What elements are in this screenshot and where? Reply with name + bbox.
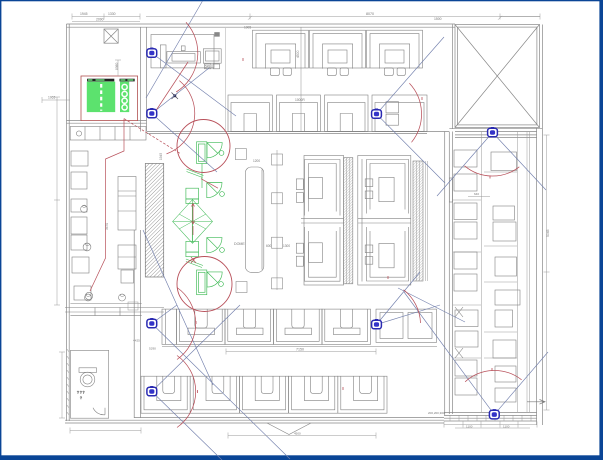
svg-text:1200: 1200 [253, 159, 260, 163]
svg-text:1100: 1100 [466, 425, 473, 429]
svg-text:DOME: DOME [234, 242, 245, 246]
svg-text:1300: 1300 [283, 244, 290, 248]
svg-text:8070: 8070 [366, 12, 374, 16]
svg-text:5045: 5045 [546, 229, 550, 237]
svg-text:? ? ?: ? ? ? [77, 391, 85, 395]
svg-text:1500: 1500 [434, 17, 442, 21]
svg-text:4500: 4500 [296, 50, 300, 58]
svg-text:4500: 4500 [294, 431, 301, 435]
svg-text:1945: 1945 [159, 153, 163, 160]
svg-text:1065: 1065 [48, 96, 56, 100]
svg-text:1000R: 1000R [295, 98, 305, 102]
svg-text:4425: 4425 [133, 339, 140, 343]
svg-text:8060: 8060 [115, 62, 119, 70]
svg-text:2090: 2090 [96, 17, 104, 21]
svg-text:200,200,300: 200,200,300 [428, 411, 445, 415]
svg-text:1330: 1330 [108, 12, 116, 16]
svg-text:549: 549 [205, 65, 211, 69]
svg-text:5290: 5290 [149, 347, 156, 351]
svg-text:600: 600 [266, 244, 272, 248]
svg-text:?: ? [80, 396, 82, 400]
svg-text:640: 640 [474, 192, 479, 196]
svg-text:1100: 1100 [503, 425, 510, 429]
svg-text:3470: 3470 [105, 223, 109, 230]
svg-text:1005: 1005 [244, 26, 251, 30]
svg-text:1945: 1945 [80, 12, 88, 16]
svg-text:7150: 7150 [296, 347, 304, 351]
